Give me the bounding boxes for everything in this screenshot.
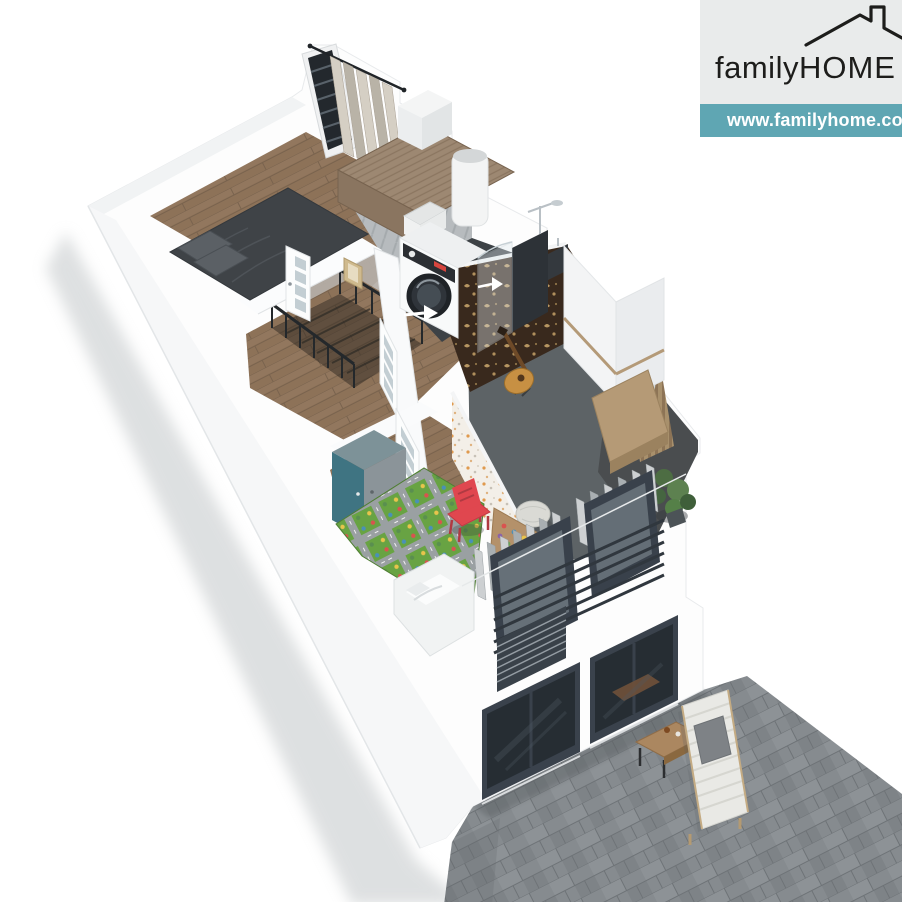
website-url: www.familyhome.com. [727, 104, 902, 137]
shower-head [551, 200, 563, 206]
water-heater [452, 149, 488, 226]
rod-finial [402, 88, 407, 93]
brand-panel: familyHOME [700, 0, 902, 104]
guitar-soundhole [518, 375, 525, 382]
wardrobe-handle [356, 492, 360, 496]
washer-drum [417, 284, 441, 308]
logo-word-home: HOME [799, 50, 896, 85]
washer-knob [409, 251, 415, 257]
cup [676, 732, 681, 737]
bedroom-door [286, 246, 310, 321]
wardrobe-handle [370, 490, 374, 494]
flyer-page: familyHOME www.familyhome.com. [0, 0, 902, 902]
rod-finial [308, 44, 313, 49]
bottle [664, 727, 670, 733]
logo-word-family: family [715, 50, 799, 85]
website-banner: www.familyhome.com. [700, 104, 902, 137]
logo-wordmark: familyHOME [715, 52, 896, 83]
door-handle [288, 282, 292, 286]
